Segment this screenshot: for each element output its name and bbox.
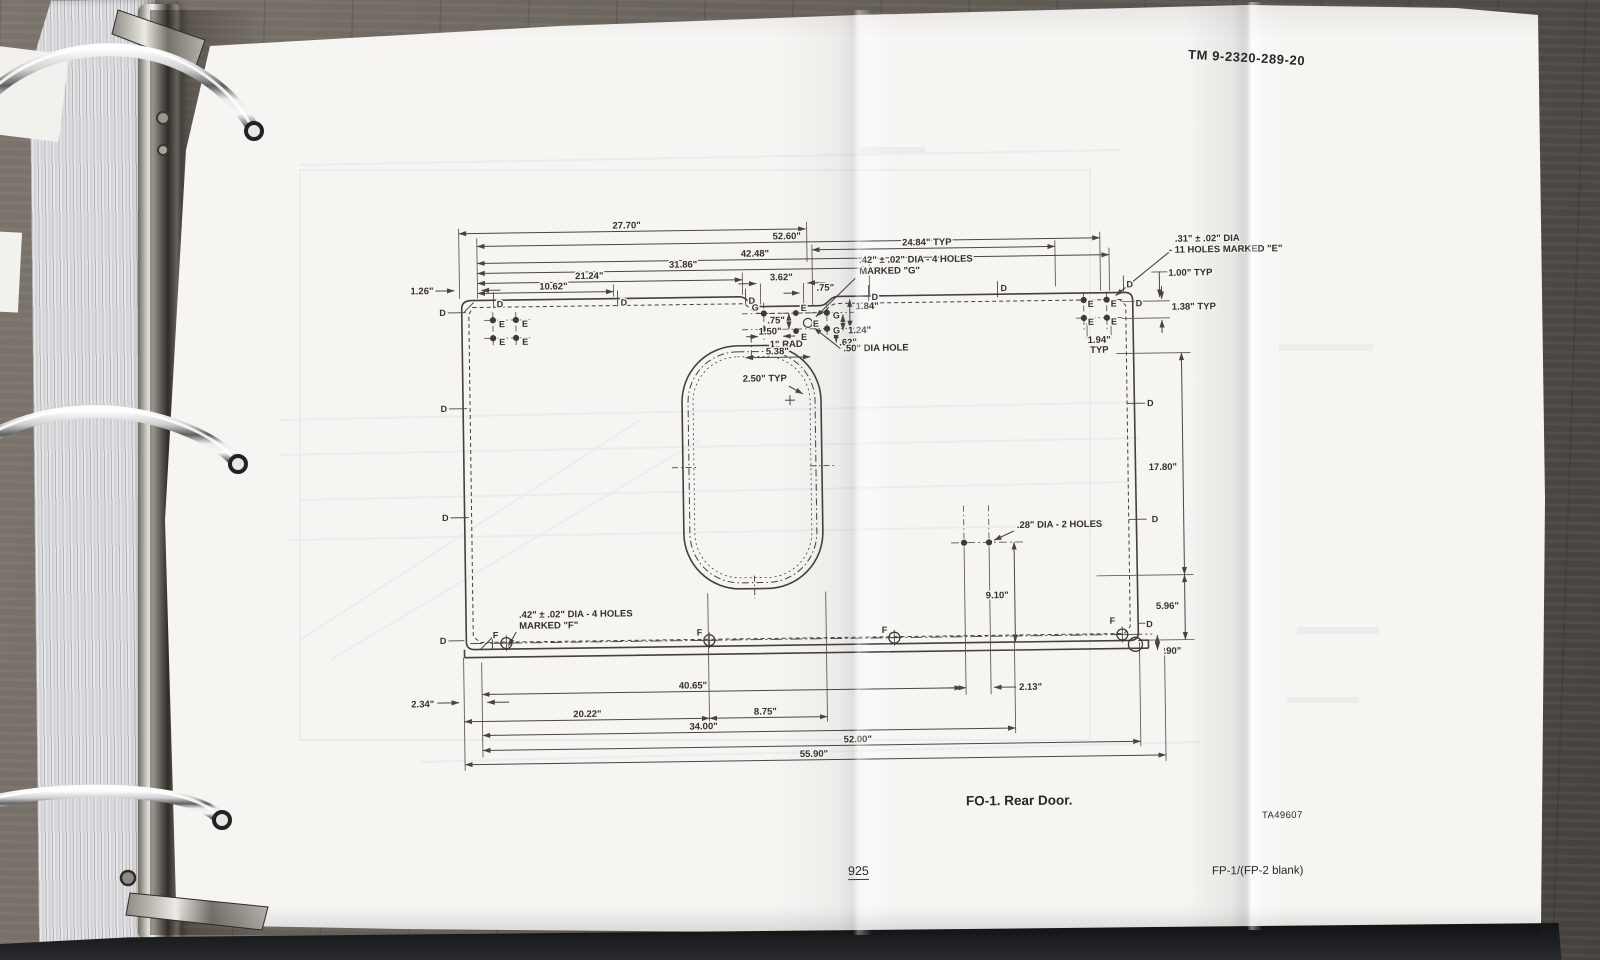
- svg-text:F: F: [697, 627, 703, 637]
- svg-text:G: G: [752, 303, 759, 313]
- spine-screw-2: [158, 145, 168, 155]
- dim-126-label: 1.26": [410, 286, 433, 297]
- svg-text:E: E: [499, 337, 505, 347]
- svg-text:D: D: [1146, 619, 1153, 629]
- svg-text:D: D: [1000, 283, 1007, 293]
- dim-138typ-label: 1.38" TYP: [1172, 301, 1217, 313]
- dim-1780-label: 17.80": [1149, 462, 1177, 473]
- sheet-artwork: 27.70" 52.60" 24.84" TYP 42.48" 31.86" 2…: [0, 0, 1600, 960]
- binder-hardware: [0, 10, 268, 930]
- svg-text:E: E: [801, 332, 807, 342]
- dim-4248-label: 42.48": [741, 248, 769, 259]
- svg-text:E: E: [1111, 299, 1117, 309]
- dim-875-label: 8.75": [754, 706, 777, 717]
- binder-ring-middle: [0, 409, 246, 472]
- svg-text:E: E: [522, 319, 528, 329]
- spine-rivet: [121, 871, 135, 885]
- dim-596-label: 5.96": [1156, 601, 1179, 612]
- figure-caption: FO-1. Rear Door.: [966, 793, 1073, 809]
- dim-194-typ-label: TYP: [1090, 345, 1109, 356]
- dim-075v-label: .75": [767, 315, 785, 326]
- dim-250typ-label: 2.50" TYP: [743, 373, 788, 385]
- dim-910-label: 9.10": [986, 590, 1009, 601]
- svg-text:D: D: [1126, 279, 1133, 289]
- rear-door-drawing: 27.70" 52.60" 24.84" TYP 42.48" 31.86" 2…: [405, 211, 1290, 771]
- dim-124-label: 1.24": [848, 325, 871, 336]
- svg-text:E: E: [813, 319, 819, 329]
- door-outline: [460, 291, 1149, 658]
- callout-g-line1: .42" ± .02" DIA - 4 HOLES: [859, 254, 973, 267]
- svg-text:E: E: [1088, 299, 1094, 309]
- dim-3186-label: 31.86": [669, 259, 697, 270]
- svg-text:D: D: [872, 292, 879, 302]
- binder-ring-bottom: [0, 788, 230, 828]
- svg-text:F: F: [882, 625, 888, 635]
- callout-f-line2: MARKED "F": [519, 620, 578, 632]
- callout-50dia-label: .50" DIA HOLE: [843, 342, 909, 354]
- svg-text:F: F: [1110, 616, 1116, 626]
- dim-4065-label: 40.65": [679, 680, 707, 691]
- svg-text:E: E: [522, 337, 528, 347]
- callout-e-line2: - 11 HOLES MARKED "E": [1169, 243, 1283, 256]
- dim-090-label: .90": [1163, 646, 1181, 657]
- svg-text:G: G: [833, 310, 840, 320]
- svg-text:D: D: [442, 513, 449, 523]
- svg-text:D: D: [1136, 298, 1143, 308]
- dim-5590-label: 55.90": [800, 749, 828, 760]
- callout-f-line1: .42" ± .02" DIA - 4 HOLES: [519, 608, 633, 621]
- d-point-labels: D D D D D D D D D D: [496, 279, 1160, 638]
- svg-text:D: D: [441, 404, 448, 414]
- dim-5260-label: 52.60": [773, 231, 801, 242]
- hole-markers: [490, 297, 1142, 661]
- spine-screw-1: [157, 112, 169, 124]
- svg-text:D: D: [439, 308, 446, 318]
- dim-362-label: 3.62": [770, 272, 793, 283]
- svg-text:D: D: [621, 297, 628, 307]
- svg-text:E: E: [499, 319, 505, 329]
- svg-text:F: F: [493, 630, 499, 640]
- svg-text:E: E: [1088, 317, 1094, 327]
- svg-text:D: D: [1152, 514, 1159, 524]
- dim-2124-label: 21.24": [575, 271, 603, 282]
- dim-538-label: 5.38": [766, 346, 789, 357]
- dim-1062-label: 10.62": [539, 281, 567, 292]
- dim-3400-label: 34.00": [689, 721, 717, 732]
- binder-ring-top: [0, 47, 262, 139]
- svg-text:D: D: [440, 636, 447, 646]
- dim-184-label: 1.84": [856, 301, 879, 312]
- callout-e-line1: .31" ± .02" DIA: [1175, 233, 1240, 245]
- footer-page-id: FP-1/(FP-2 blank): [1212, 865, 1303, 878]
- spine-bottom-clamp: [126, 893, 268, 930]
- dim-2770-label: 27.70": [612, 220, 640, 231]
- dim-234-label: 2.34": [411, 699, 434, 710]
- dim-075top-label: .75": [816, 283, 834, 294]
- svg-text:E: E: [801, 303, 807, 313]
- dim-213-label: 2.13": [1019, 682, 1042, 693]
- door-inner-stitch-line: [469, 298, 1131, 642]
- svg-text:G: G: [833, 325, 840, 335]
- dim-2022-label: 20.22": [573, 709, 601, 720]
- callout-g-line2: MARKED "G": [859, 265, 920, 277]
- dim-5200-label: 52.00": [844, 734, 872, 745]
- figure-ref-code: TA49607: [1262, 810, 1303, 821]
- svg-text:D: D: [1147, 398, 1154, 408]
- dim-150-label: 1.50": [758, 326, 781, 337]
- dim-2484-label: 24.84" TYP: [902, 237, 952, 249]
- svg-text:D: D: [497, 299, 504, 309]
- svg-text:E: E: [1111, 317, 1117, 327]
- callout-28dia-label: .28" DIA - 2 HOLES: [1017, 519, 1103, 531]
- dim-100typ-label: 1.00" TYP: [1168, 267, 1213, 279]
- photo-of-open-binder: { "page": { "header_tm": "TM 9-2320-289-…: [0, 0, 1600, 960]
- page-number: 925: [848, 864, 869, 880]
